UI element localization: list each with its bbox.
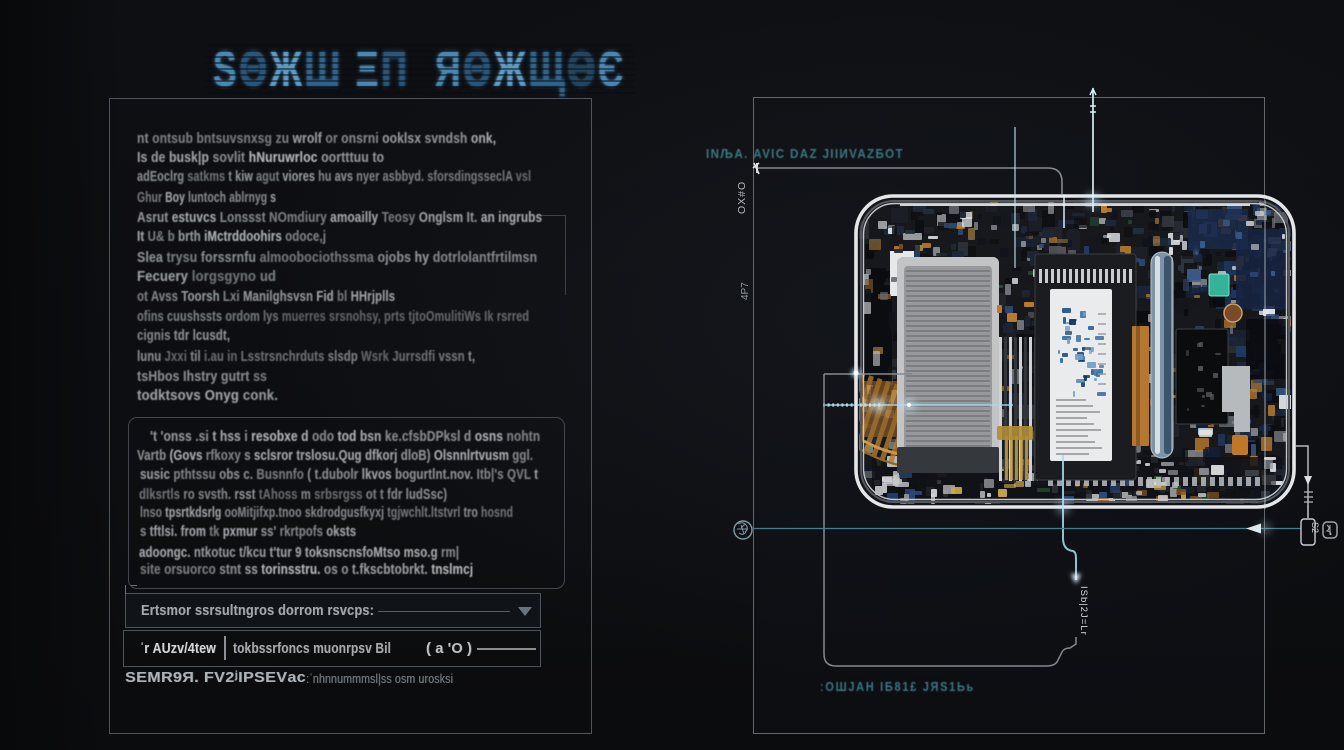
svg-text:4P7: 4P7 [740,282,751,300]
svg-text:S2: S2 [1310,522,1320,533]
svg-text:ISb|2J=Lr: ISb|2J=Lr [1078,586,1089,636]
svg-text:OX#O: OX#O [736,181,748,214]
